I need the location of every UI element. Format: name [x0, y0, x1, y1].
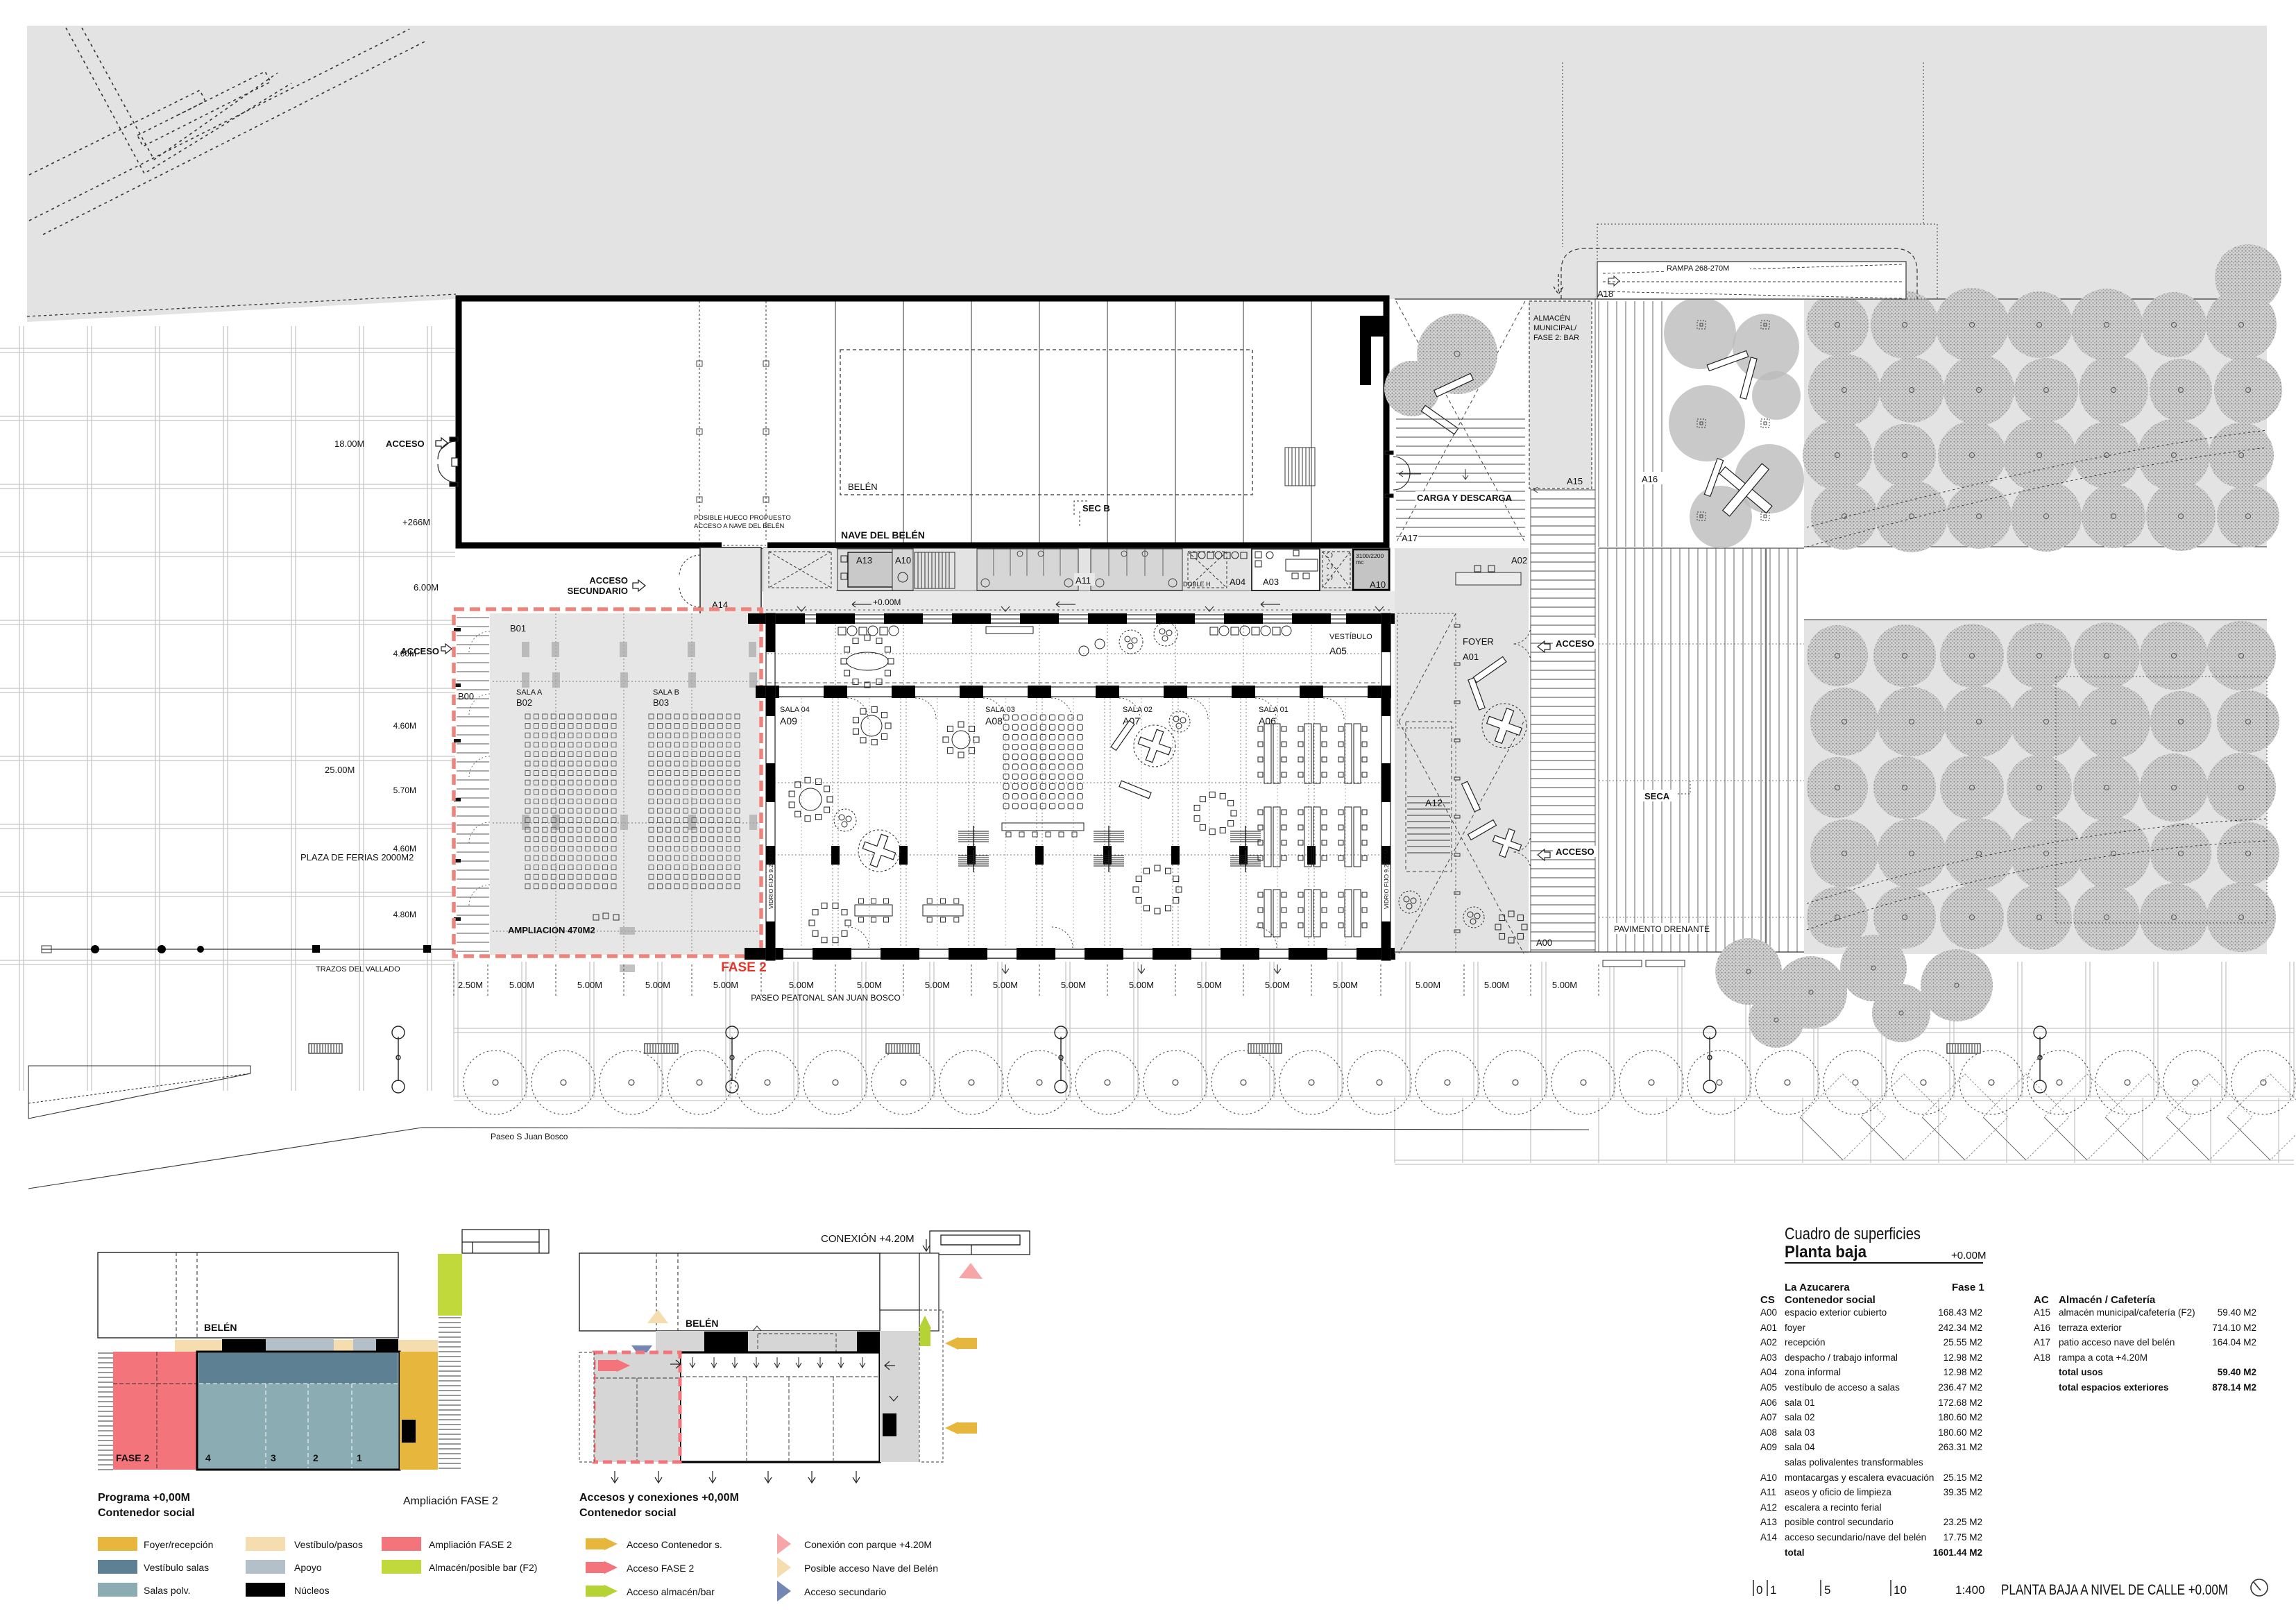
svg-text:total espacios exteriores: total espacios exteriores [2059, 1382, 2168, 1393]
svg-text:sala 03: sala 03 [1785, 1427, 1815, 1438]
svg-text:ACCESO: ACCESO [1556, 847, 1595, 857]
svg-text:A00: A00 [1536, 937, 1552, 948]
svg-text:A17: A17 [1402, 533, 1418, 543]
svg-text:terraza exterior: terraza exterior [2059, 1323, 2122, 1333]
svg-text:5: 5 [1824, 1583, 1830, 1597]
svg-text:despacho / trabajo informal: despacho / trabajo informal [1785, 1352, 1898, 1363]
svg-text:5.00M: 5.00M [789, 980, 814, 990]
svg-text:2: 2 [313, 1452, 318, 1463]
svg-text:1:400: 1:400 [1955, 1583, 1985, 1597]
svg-text:A04: A04 [1230, 577, 1245, 587]
svg-text:5.00M: 5.00M [713, 980, 738, 990]
svg-text:SECUNDARIO: SECUNDARIO [568, 586, 628, 596]
svg-text:6.00M: 6.00M [414, 582, 439, 593]
svg-text:5.00M: 5.00M [1552, 980, 1577, 990]
svg-text:+0.00M: +0.00M [873, 597, 901, 607]
svg-text:FASE 2: FASE 2 [721, 960, 766, 975]
svg-text:Vestíbulo salas: Vestíbulo salas [144, 1562, 209, 1573]
svg-text:CARGA Y DESCARGA: CARGA Y DESCARGA [1417, 493, 1513, 503]
svg-text:montacargas y escalera evacuac: montacargas y escalera evacuación [1785, 1472, 1934, 1483]
svg-text:A11: A11 [1760, 1487, 1776, 1497]
svg-text:sala 02: sala 02 [1785, 1412, 1815, 1422]
svg-text:almacén municipal/cafetería (F: almacén municipal/cafetería (F2) [2059, 1307, 2195, 1318]
svg-text:Almacén/posible bar (F2): Almacén/posible bar (F2) [429, 1562, 537, 1573]
svg-text:Cuadro de superficies: Cuadro de superficies [1785, 1225, 1921, 1243]
svg-text:acceso secundario/nave del bel: acceso secundario/nave del belén [1785, 1532, 1926, 1543]
svg-text:5.00M: 5.00M [1129, 980, 1154, 990]
svg-text:A15: A15 [2034, 1307, 2050, 1318]
svg-text:A11: A11 [1075, 575, 1091, 586]
svg-text:AC: AC [2034, 1294, 2049, 1306]
svg-text:total usos: total usos [2059, 1367, 2103, 1377]
svg-text:Paseo S Juan Bosco: Paseo S Juan Bosco [491, 1132, 568, 1141]
svg-text:zona informal: zona informal [1785, 1367, 1841, 1377]
svg-text:SALA A: SALA A [516, 688, 543, 697]
svg-text:A14: A14 [1760, 1532, 1778, 1543]
svg-text:714.10 M2: 714.10 M2 [2212, 1323, 2256, 1333]
svg-text:BELÉN: BELÉN [686, 1318, 718, 1329]
svg-text:1: 1 [1770, 1583, 1776, 1597]
svg-text:10: 10 [1894, 1583, 1907, 1597]
svg-text:0: 0 [1756, 1583, 1762, 1597]
svg-text:SALA 03: SALA 03 [985, 706, 1015, 714]
svg-text:Apoyo: Apoyo [294, 1562, 322, 1573]
svg-text:recepción: recepción [1785, 1337, 1826, 1348]
svg-text:25.00M: 25.00M [325, 765, 355, 775]
svg-text:mc: mc [1356, 559, 1364, 566]
svg-text:5.70M: 5.70M [393, 785, 416, 795]
svg-text:BELÉN: BELÉN [204, 1322, 237, 1333]
svg-text:164.04 M2: 164.04 M2 [2212, 1337, 2256, 1348]
svg-text:total: total [1785, 1547, 1805, 1558]
svg-text:BELÉN: BELÉN [848, 482, 878, 492]
svg-text:A12: A12 [1760, 1502, 1777, 1513]
svg-text:FOYER: FOYER [1463, 636, 1494, 647]
svg-text:DOBLE H: DOBLE H [1183, 581, 1211, 588]
svg-text:Contenedor social: Contenedor social [1785, 1294, 1876, 1306]
svg-text:PLAZA DE FERIAS 2000M2: PLAZA DE FERIAS 2000M2 [300, 852, 414, 863]
svg-text:RAMPA 268-270M: RAMPA 268-270M [1667, 264, 1729, 273]
svg-text:5.00M: 5.00M [1197, 980, 1222, 990]
svg-text:Acceso almacén/bar: Acceso almacén/bar [627, 1586, 715, 1597]
svg-text:SALA 02: SALA 02 [1123, 706, 1153, 714]
svg-text:patio acceso nave del belén: patio acceso nave del belén [2059, 1337, 2175, 1348]
svg-text:Planta baja: Planta baja [1785, 1243, 1867, 1261]
svg-text:5.00M: 5.00M [1484, 980, 1509, 990]
svg-text:A01: A01 [1463, 652, 1479, 662]
svg-text:SALA B: SALA B [653, 688, 679, 697]
svg-text:Acceso Contenedor s.: Acceso Contenedor s. [627, 1539, 722, 1550]
svg-text:B00: B00 [458, 691, 474, 702]
svg-text:A06: A06 [1760, 1397, 1777, 1408]
svg-text:A07: A07 [1760, 1412, 1777, 1422]
svg-text:Núcleos: Núcleos [294, 1585, 330, 1596]
svg-text:Contenedor social: Contenedor social [579, 1507, 677, 1519]
svg-text:Programa +0,00M: Programa +0,00M [98, 1492, 190, 1504]
svg-text:1601.44 M2: 1601.44 M2 [1933, 1547, 1982, 1558]
svg-text:5.00M: 5.00M [1265, 980, 1290, 990]
svg-text:SALA 01: SALA 01 [1259, 706, 1289, 714]
svg-text:5.00M: 5.00M [925, 980, 950, 990]
svg-text:4.60M: 4.60M [393, 844, 416, 853]
svg-text:5.00M: 5.00M [857, 980, 882, 990]
svg-text:180.60 M2: 180.60 M2 [1938, 1427, 1982, 1438]
svg-text:A04: A04 [1760, 1367, 1778, 1377]
svg-text:A12: A12 [1425, 797, 1443, 808]
svg-text:4.60M: 4.60M [393, 649, 416, 658]
svg-text:A03: A03 [1263, 577, 1279, 587]
svg-text:ALMACÉN: ALMACÉN [1533, 314, 1570, 323]
svg-text:escalera a recinto ferial: escalera a recinto ferial [1785, 1502, 1882, 1513]
svg-text:posible control secundario: posible control secundario [1785, 1517, 1894, 1527]
svg-text:5.00M: 5.00M [645, 980, 670, 990]
svg-text:AMPLIACION 470M2: AMPLIACION 470M2 [508, 925, 595, 935]
svg-text:3: 3 [271, 1452, 276, 1463]
svg-text:Ampliación FASE 2: Ampliación FASE 2 [403, 1495, 498, 1507]
svg-text:SEC B: SEC B [1082, 503, 1110, 513]
svg-text:242.34 M2: 242.34 M2 [1938, 1323, 1982, 1333]
svg-text:ACCESO: ACCESO [1556, 638, 1595, 649]
svg-text:A05: A05 [1760, 1382, 1777, 1393]
svg-text:POSIBLE HUECO PROPUESTO: POSIBLE HUECO PROPUESTO [694, 514, 791, 522]
svg-text:Posible acceso Nave del Belén: Posible acceso Nave del Belén [804, 1563, 938, 1574]
svg-text:A18: A18 [1597, 289, 1613, 299]
svg-text:salas polivalentes transformab: salas polivalentes transformables [1785, 1457, 1923, 1468]
svg-text:B01: B01 [510, 623, 526, 634]
svg-text:Vestíbulo/pasos: Vestíbulo/pasos [294, 1539, 363, 1550]
svg-text:A00: A00 [1760, 1307, 1777, 1318]
svg-text:A01: A01 [1760, 1323, 1777, 1333]
svg-text:espacio exterior cubierto: espacio exterior cubierto [1785, 1307, 1887, 1318]
svg-text:B03: B03 [653, 697, 669, 708]
svg-text:12.98 M2: 12.98 M2 [1944, 1367, 1982, 1377]
svg-text:A08: A08 [1760, 1427, 1777, 1438]
svg-text:Accesos y conexiones +0,00M: Accesos y conexiones +0,00M [579, 1492, 739, 1504]
svg-text:ACCESO: ACCESO [386, 439, 425, 449]
svg-text:TRAZOS DEL VALLADO: TRAZOS DEL VALLADO [316, 965, 400, 974]
svg-text:A05: A05 [1329, 645, 1347, 656]
svg-text:Acceso FASE 2: Acceso FASE 2 [627, 1563, 694, 1574]
svg-text:59.40 M2: 59.40 M2 [2218, 1367, 2256, 1377]
svg-text:SALA 04: SALA 04 [780, 706, 810, 714]
svg-text:17.75 M2: 17.75 M2 [1944, 1532, 1982, 1543]
svg-text:A09: A09 [780, 715, 797, 726]
svg-text:Salas polv.: Salas polv. [144, 1585, 190, 1596]
svg-text:Conexión con parque +4.20M: Conexión con parque +4.20M [804, 1539, 932, 1550]
svg-text:FASE 2: FASE 2 [116, 1452, 149, 1463]
svg-text:foyer: foyer [1785, 1323, 1806, 1333]
svg-text:A17: A17 [2034, 1337, 2050, 1348]
svg-text:Fase 1: Fase 1 [1952, 1282, 1984, 1293]
svg-text:A08: A08 [985, 715, 1003, 726]
svg-text:23.25 M2: 23.25 M2 [1944, 1517, 1982, 1527]
svg-text:236.47 M2: 236.47 M2 [1938, 1382, 1982, 1393]
svg-text:25.15 M2: 25.15 M2 [1944, 1472, 1982, 1483]
svg-text:180.60 M2: 180.60 M2 [1938, 1412, 1982, 1422]
svg-text:172.68 M2: 172.68 M2 [1938, 1397, 1982, 1408]
svg-text:A18: A18 [2034, 1352, 2050, 1363]
svg-text:NAVE DEL BELÉN: NAVE DEL BELÉN [841, 529, 925, 541]
svg-text:A16: A16 [2034, 1323, 2050, 1333]
svg-text:PASEO PEATONAL SAN JUAN BOSCO: PASEO PEATONAL SAN JUAN BOSCO [751, 993, 901, 1003]
svg-text:1: 1 [357, 1452, 362, 1463]
svg-text:ACCESO A NAVE DEL BELÉN: ACCESO A NAVE DEL BELÉN [694, 522, 785, 530]
svg-text:A10: A10 [1370, 579, 1386, 590]
svg-text:A16: A16 [1642, 474, 1658, 484]
svg-text:18.00M: 18.00M [334, 439, 364, 449]
svg-text:A13: A13 [1760, 1517, 1777, 1527]
svg-text:4.60M: 4.60M [393, 721, 416, 731]
svg-text:263.31 M2: 263.31 M2 [1938, 1442, 1982, 1452]
svg-text:2.50M: 2.50M [458, 980, 483, 990]
svg-text:A13: A13 [856, 555, 872, 566]
svg-text:5.00M: 5.00M [509, 980, 534, 990]
svg-text:vestíbulo de acceso a salas: vestíbulo de acceso a salas [1785, 1382, 1900, 1393]
svg-text:Contenedor social: Contenedor social [98, 1507, 195, 1519]
svg-text:A02: A02 [1511, 555, 1527, 566]
svg-text:MUNICIPAL/: MUNICIPAL/ [1533, 324, 1577, 332]
svg-text:5.00M: 5.00M [1061, 980, 1086, 990]
svg-text:VIDRIO FIJO 9.25/2.5M: VIDRIO FIJO 9.25/2.5M [767, 847, 774, 909]
svg-text:Almacén / Cafetería: Almacén / Cafetería [2059, 1294, 2156, 1306]
svg-text:+0.00M: +0.00M [1951, 1250, 1986, 1261]
svg-text:aseos y oficio de limpieza: aseos y oficio de limpieza [1785, 1487, 1891, 1497]
svg-text:CONEXIÓN +4.20M: CONEXIÓN +4.20M [821, 1233, 915, 1245]
svg-text:5.00M: 5.00M [993, 980, 1018, 990]
svg-text:25.55 M2: 25.55 M2 [1944, 1337, 1982, 1348]
svg-text:A09: A09 [1760, 1442, 1777, 1452]
svg-text:PLANTA BAJA A NIVEL DE CALLE +: PLANTA BAJA A NIVEL DE CALLE +0.00M [2001, 1582, 2228, 1598]
svg-text:Ampliación FASE 2: Ampliación FASE 2 [429, 1539, 512, 1550]
svg-text:A10: A10 [895, 555, 911, 566]
svg-text:PAVIMENTO DRENANTE: PAVIMENTO DRENANTE [1614, 924, 1710, 934]
svg-text:5.00M: 5.00M [577, 980, 602, 990]
svg-text:39.35 M2: 39.35 M2 [1944, 1487, 1982, 1497]
svg-text:Foyer/recepción: Foyer/recepción [144, 1539, 213, 1550]
svg-text:rampa a cota +4.20M: rampa a cota +4.20M [2059, 1352, 2148, 1363]
svg-text:sala 01: sala 01 [1785, 1397, 1815, 1408]
svg-text:SECA: SECA [1644, 791, 1670, 801]
svg-text:A15: A15 [1567, 476, 1583, 486]
svg-text:A10: A10 [1760, 1472, 1777, 1483]
svg-text:ACCESO: ACCESO [589, 575, 628, 586]
svg-text:4.80M: 4.80M [393, 910, 416, 919]
svg-text:4: 4 [205, 1452, 211, 1463]
svg-text:168.43 M2: 168.43 M2 [1938, 1307, 1982, 1318]
svg-text:B02: B02 [516, 697, 532, 708]
svg-text:A03: A03 [1760, 1352, 1777, 1363]
svg-text:A02: A02 [1760, 1337, 1777, 1348]
svg-text:+266M: +266M [402, 517, 430, 527]
svg-text:59.40 M2: 59.40 M2 [2218, 1307, 2256, 1318]
svg-text:878.14 M2: 878.14 M2 [2212, 1382, 2256, 1393]
svg-text:FASE 2: BAR: FASE 2: BAR [1533, 334, 1579, 342]
svg-text:La Azucarera: La Azucarera [1785, 1282, 1850, 1293]
svg-text:sala 04: sala 04 [1785, 1442, 1815, 1452]
svg-text:5.00M: 5.00M [1415, 980, 1440, 990]
svg-text:Acceso secundario: Acceso secundario [804, 1586, 887, 1597]
svg-text:VIDRIO FIJO 9.25/2.5M: VIDRIO FIJO 9.25/2.5M [1383, 847, 1390, 909]
svg-text:5.00M: 5.00M [1333, 980, 1358, 990]
svg-text:12.98 M2: 12.98 M2 [1944, 1352, 1982, 1363]
svg-text:VESTÍBULO: VESTÍBULO [1329, 632, 1372, 641]
svg-text:CS: CS [1760, 1294, 1775, 1306]
